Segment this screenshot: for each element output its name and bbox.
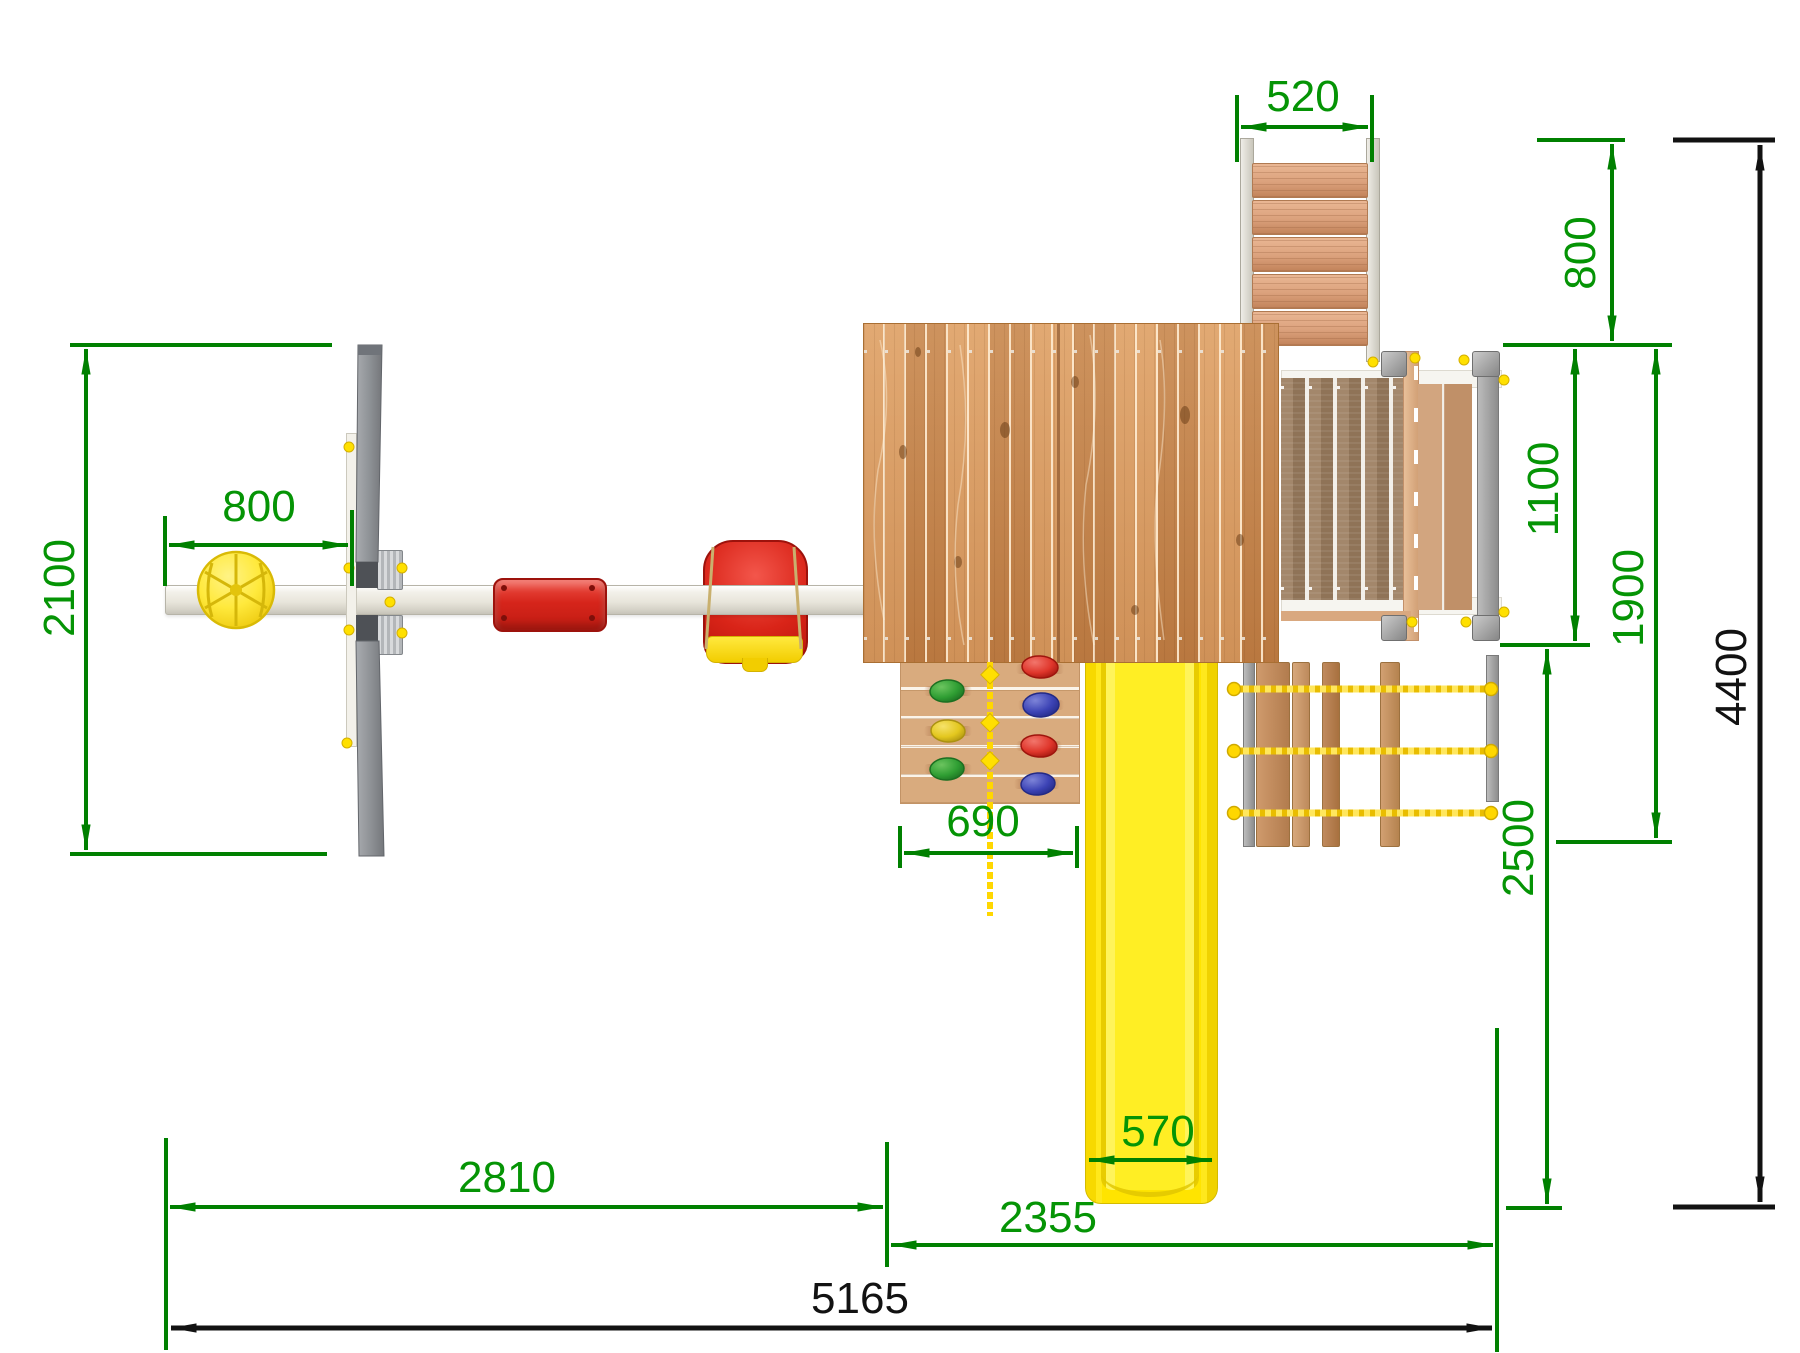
dim-label-570: 570 — [1121, 1110, 1194, 1154]
dim-label-2500: 2500 — [1497, 799, 1541, 897]
dim-2500 — [1506, 649, 1562, 1208]
dim-label-800r: 800 — [1559, 216, 1603, 289]
dim-label-2355: 2355 — [999, 1196, 1097, 1240]
dim-label-690: 690 — [946, 800, 1019, 844]
dim-label-1900: 1900 — [1607, 549, 1651, 647]
dim-label-2810: 2810 — [458, 1156, 556, 1200]
dim-2100 — [70, 345, 332, 854]
dim-label-4400: 4400 — [1710, 628, 1754, 726]
playground-top-view-drawing: 520 800 1100 1900 2500 4400 2100 800 690… — [0, 0, 1800, 1353]
dim-label-520: 520 — [1266, 75, 1339, 119]
dim-label-1100: 1100 — [1522, 442, 1566, 537]
dim-2355 — [891, 1028, 1497, 1352]
dim-label-2100: 2100 — [38, 539, 82, 637]
dimension-layer — [0, 0, 1800, 1353]
dim-label-800l: 800 — [222, 485, 295, 529]
dim-label-5165: 5165 — [811, 1277, 909, 1321]
